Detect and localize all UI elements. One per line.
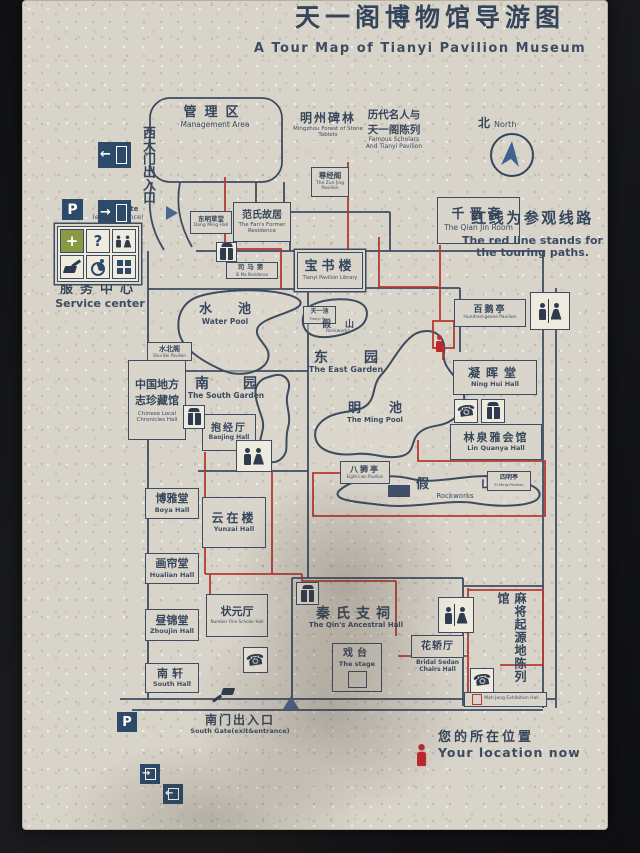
hall-yunzai: 云在楼 Yunzai Hall (202, 497, 266, 548)
east-garden-label: 东园 The East Garden (306, 350, 386, 375)
rockworks-top-label: 假山 Rockworks (312, 320, 364, 335)
vending-icon (112, 255, 136, 279)
qins-ancestral-hall-label: 秦氏支祠 The Qin's Ancestral Hall (300, 606, 412, 630)
gift-shop-icon (481, 399, 505, 423)
west-gate-triangle-icon (166, 206, 178, 220)
hall-fans-residence: 范氏故居 The Fan's Former Residence (233, 202, 291, 242)
tiny-pavilion-box (388, 485, 410, 497)
current-location-marker-icon (436, 325, 443, 352)
mahjong-en-strip: Mah Jong Exhibition Hall (464, 692, 547, 707)
restroom-icon (236, 440, 272, 472)
hall-ninghui: 凝晖堂 Ning Hui Hall (453, 360, 537, 395)
stage-box: 戏台 The stage (332, 643, 382, 692)
ticket-hand-icon (60, 255, 84, 279)
gift-shop-icon (183, 405, 205, 429)
service-center-label: 服务中心 Service center (48, 283, 152, 310)
area-management: 管理区 Management Area (160, 106, 270, 129)
mahjong-red-box (472, 694, 482, 705)
hall-linquanya: 林泉雅会馆 Lin Quanya Hall (450, 424, 542, 460)
photo-of-map-sign: 天一阁博物馆导游图 A Tour Map of Tianyi Pavilion … (0, 0, 640, 853)
hall-sima: 司马第 Si Ma Residence (226, 262, 278, 279)
hall-hualian: 画帘堂 Hualian Hall (145, 553, 199, 584)
hall-bridal-sedan: 花轿厅 (411, 635, 464, 658)
restroom-icon (530, 292, 570, 330)
pavilion-hundred-geese: 百鹅亭 Hundred-geese Pavilion (454, 299, 526, 327)
entrance-icon: → (140, 764, 160, 784)
entrance-icon: → (98, 200, 131, 226)
hall-mahjong-label: 麻将起源地陈列馆 (495, 592, 529, 686)
north-label: 北 North (478, 117, 524, 131)
redline-legend: 红线为参观线路 The red line stands for the tour… (455, 210, 610, 259)
exit-icon: ← (98, 142, 131, 168)
wheelchair-icon (86, 255, 110, 279)
restroom-icon (438, 597, 474, 633)
hall-zhuangyuan: 状元厅 Number One Scholar Hall (206, 594, 268, 637)
area-famous-scholars: 历代名人与天一阁陈列 Famous Scholars And Tianyi Pa… (363, 108, 425, 151)
south-gate-label: 南门出入口 South Gate(exit&entrance) (190, 714, 290, 735)
hall-south: 南轩 South Hall (145, 663, 199, 693)
parking-icon: P (117, 712, 137, 732)
information-icon: ? (86, 229, 110, 253)
exit-icon: ← (163, 784, 183, 804)
your-location-legend: 您的所在位置 Your location now (438, 731, 598, 760)
first-aid-icon: + (60, 229, 84, 253)
north-compass-icon (490, 133, 534, 177)
gift-shop-icon (216, 242, 237, 262)
hall-zunjing: 尊经阁 The Zun Jing Pavilion (311, 167, 349, 197)
water-pool-label: 水池 Water Pool (190, 303, 260, 326)
page-title: 天一阁博物馆导游图 (260, 4, 600, 33)
hall-zhoujin: 昼锦堂 Zhoujin Hall (145, 609, 199, 641)
hall-bridal-sedan-en: Bridal Sedan Chairs Hall (405, 660, 470, 673)
hall-chronicles: 中国地方志珍藏馆 Chinese Local Chronicles Hall (128, 360, 186, 440)
service-center-icons: + ? (57, 226, 139, 282)
gift-shop-icon (296, 582, 319, 605)
south-garden-label: 南园 The South Garden (186, 376, 266, 400)
phone-icon: ☎ (454, 399, 478, 423)
hall-boya: 博雅堂 Boya Hall (145, 488, 199, 519)
restroom-icon (112, 229, 136, 253)
west-gate-label-zh: 西大门出入口 (138, 126, 157, 234)
hall-shuibei: 水北阁 Shui Bei Pavilion (147, 342, 192, 361)
title-en: A Tour Map of Tianyi Pavilion Museum (254, 42, 586, 56)
south-gate-triangle-icon (283, 696, 299, 709)
area-mingzhou-stele-forest: 明州碑林 Mingzhou Forest of Stone Tablets (292, 112, 364, 138)
title-zh: 天一阁博物馆导游图 (295, 4, 565, 33)
stage-inner-box (348, 671, 367, 688)
location-marker-icon (417, 731, 426, 766)
hall-baoshu-library: 宝书楼 Tianyi Pavilion Library (297, 252, 363, 289)
hall-dongming: 东明草堂 Dong Ming Hall (190, 211, 232, 234)
pavilion-siming: 四明亭 Si Ming Pavilion (487, 471, 531, 491)
phone-icon: ☎ (470, 668, 494, 693)
phone-icon: ☎ (243, 647, 268, 673)
ming-pool-label: 明池 The Ming Pool (340, 402, 410, 425)
parking-icon: P (62, 199, 83, 220)
page-subtitle: A Tour Map of Tianyi Pavilion Museum (240, 42, 600, 56)
